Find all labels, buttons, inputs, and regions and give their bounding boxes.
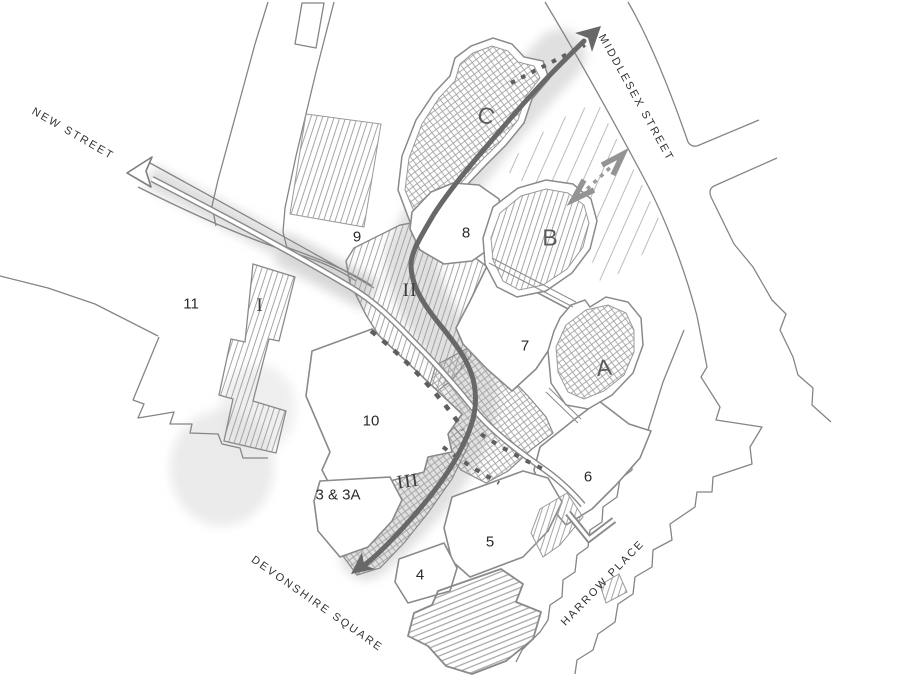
building-label-11: 11 [183, 296, 199, 313]
pedestrian-path-arrow [568, 513, 614, 539]
block-label-b: B [542, 225, 557, 252]
site-plan: NEW STREET MIDDLESEX STREET HARROW PLACE… [0, 0, 900, 675]
site-plan-drawing [0, 0, 900, 675]
building-label-3-3a: 3 & 3A [315, 487, 360, 504]
block-label-a: A [595, 354, 613, 382]
building-label-4: 4 [416, 567, 424, 584]
phase-label-ii: II [403, 280, 418, 302]
building-label-7: 7 [521, 338, 529, 355]
building-label-8: 8 [462, 225, 470, 242]
building-9-hatch [290, 114, 381, 227]
building-label-10: 10 [363, 413, 380, 430]
phase-label-i: I [256, 295, 263, 317]
building-label-6: 6 [584, 469, 592, 486]
new-street-direction-arrow [127, 157, 152, 187]
phase-label-iii: III [396, 470, 421, 495]
building-label-5: 5 [486, 534, 494, 551]
building-label-9: 9 [353, 229, 361, 246]
